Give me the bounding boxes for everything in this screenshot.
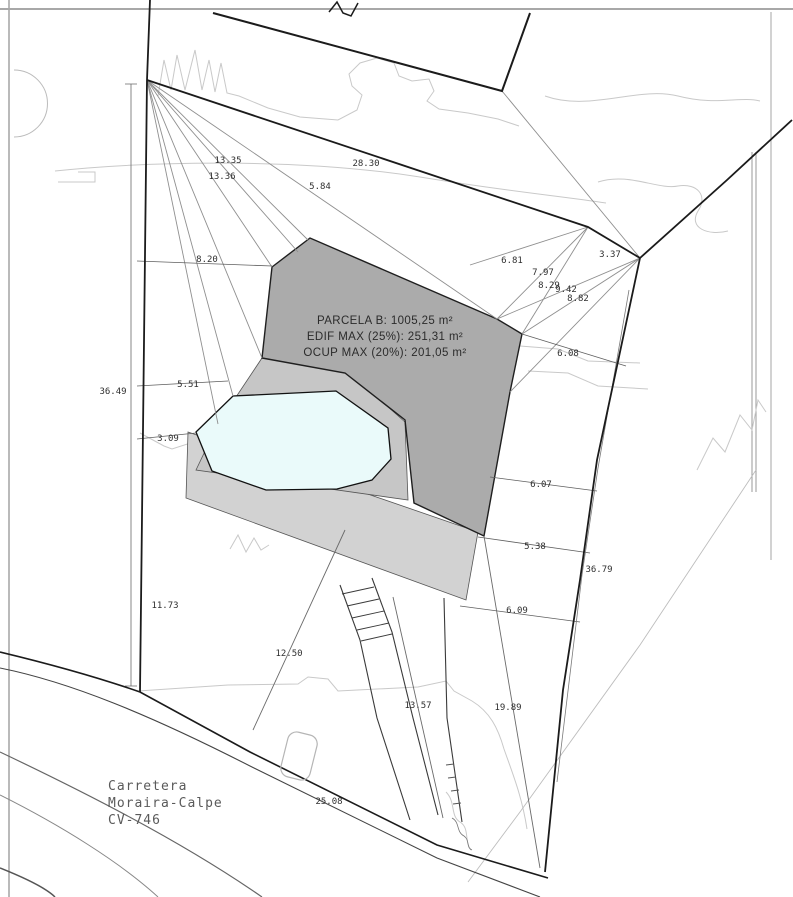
dim-label: 19.89: [494, 703, 521, 713]
dim-label: 5.84: [309, 182, 331, 192]
dim-label: 13.57: [404, 701, 431, 711]
dim-label: 13.36: [208, 172, 235, 182]
vegetation-scribble: [452, 818, 472, 850]
fan-b3: [470, 227, 588, 265]
road-name-line2: Moraira-Calpe: [108, 796, 223, 811]
dim-label: 8.82: [567, 294, 589, 304]
tie-19-89: [484, 536, 540, 868]
road-name-line1: Carretera: [108, 779, 187, 794]
road-edge-lower: [0, 668, 540, 897]
contour-topright-a: [545, 94, 760, 102]
road-edge-upper: [0, 652, 548, 878]
parcel-info-block: PARCELA B: 1005,25 m² EDIF MAX (25%): 25…: [303, 315, 466, 359]
fan-a6: [147, 80, 233, 396]
dim-line-36-49: [125, 84, 137, 686]
contour-topright-b: [598, 179, 728, 233]
boundary-left: [140, 0, 150, 692]
site-plan-canvas: 13.35 13.36 28.30 5.84 8.20 6.81 7.97 8.…: [0, 0, 793, 897]
fan-c3: [510, 258, 640, 392]
dim-label: 36.49: [99, 387, 126, 397]
stair-steps: [342, 587, 392, 641]
access-details: [279, 578, 472, 850]
dim-label: 3.09: [157, 434, 179, 444]
building-top-outline: [213, 13, 530, 91]
dim-label: 25.08: [315, 797, 342, 807]
dim-label: 6.08: [557, 349, 579, 359]
dim-label: 6.81: [501, 256, 523, 266]
road-name-line3: CV-746: [108, 813, 161, 828]
dim-label: 11.73: [151, 601, 178, 611]
neighbor-boundary: [640, 120, 792, 258]
stair-rail-right: [372, 578, 438, 815]
site-plan-sheet: 13.35 13.36 28.30 5.84 8.20 6.81 7.97 8.…: [0, 0, 793, 897]
path-edge: [444, 598, 462, 822]
stair-rail-left: [340, 585, 410, 820]
contour-top: [158, 50, 519, 126]
contour-zigzag-left: [230, 535, 269, 552]
tie-12-50: [253, 530, 345, 730]
fan-a5: [147, 80, 262, 358]
parcel-area-text: PARCELA B: 1005,25 m²: [317, 315, 453, 327]
fan-c4: [502, 91, 640, 258]
dim-label: 8.20: [196, 255, 218, 265]
contour-hook: [58, 172, 95, 182]
slope-line-right: [468, 470, 756, 882]
car-outline: [279, 730, 319, 782]
parcel-ocup-text: OCUP MAX (20%): 201,05 m²: [303, 347, 466, 359]
dim-label: 13.35: [214, 156, 241, 166]
dim-label: 6.09: [506, 606, 528, 616]
platforms: [186, 238, 522, 600]
fan-a7: [147, 80, 218, 424]
dim-label: 5.38: [524, 542, 546, 552]
dim-label: 6.07: [530, 480, 552, 490]
left-margin-arc: [14, 70, 47, 137]
dim-label: 5.51: [177, 380, 199, 390]
parcel-edif-text: EDIF MAX (25%): 251,31 m²: [307, 331, 463, 343]
contour-step-a: [520, 346, 640, 363]
dim-label: 36.79: [585, 565, 612, 575]
dim-label: 7.97: [532, 268, 554, 278]
dim-label: 3.37: [599, 250, 621, 260]
contour-step-b: [528, 371, 648, 389]
dim-label: 12.50: [275, 649, 302, 659]
road-name-block: Carretera Moraira-Calpe CV-746: [108, 779, 223, 828]
dim-label: 28.30: [352, 159, 379, 169]
